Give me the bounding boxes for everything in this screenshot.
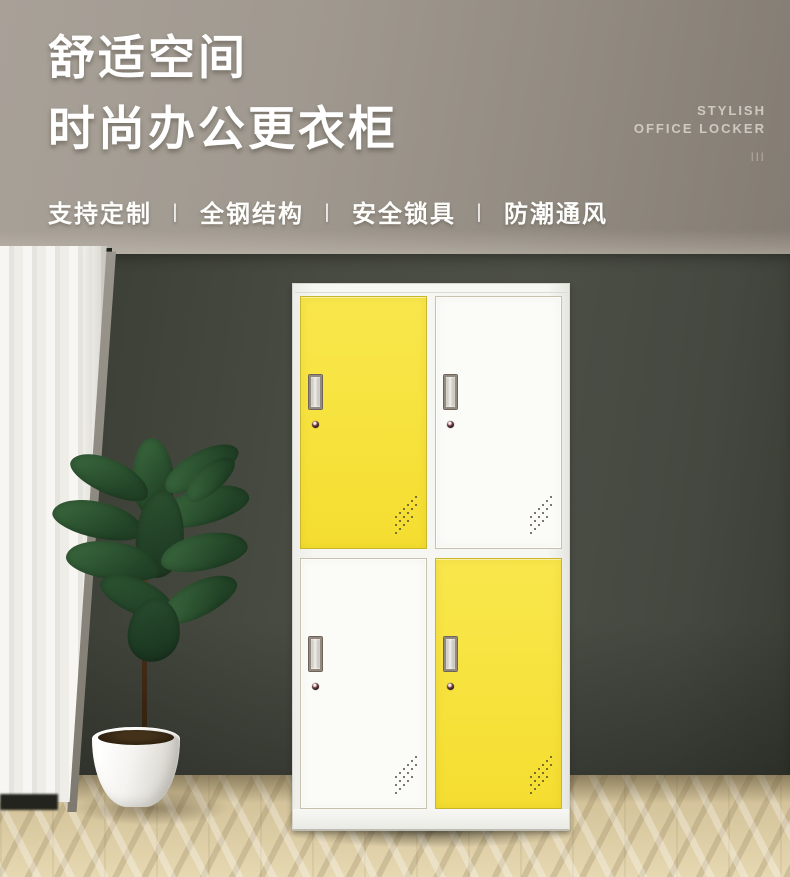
door-handle xyxy=(444,637,457,671)
door-handle xyxy=(444,375,457,409)
title-line-2: 时尚办公更衣柜 xyxy=(48,93,398,164)
feature-item: 安全锁具 xyxy=(352,201,456,228)
locker-door-top-left xyxy=(300,296,427,549)
title-line-1: 舒适空间 xyxy=(48,22,398,93)
english-tagline: STYLISH OFFICE LOCKER ||| xyxy=(634,102,766,165)
vent-holes xyxy=(395,494,419,535)
door-lock xyxy=(447,421,454,428)
door-lock xyxy=(312,683,319,690)
door-lock xyxy=(312,421,319,428)
main-title: 舒适空间 时尚办公更衣柜 xyxy=(48,22,398,164)
feature-list: 支持定制丨全钢结构丨安全锁具丨防潮通风 xyxy=(48,194,608,229)
promo-banner: 舒适空间 时尚办公更衣柜 支持定制丨全钢结构丨安全锁具丨防潮通风 STYLISH… xyxy=(0,0,790,877)
vent-holes xyxy=(530,494,554,535)
feature-item: 支持定制 xyxy=(48,201,152,228)
door-handle xyxy=(309,375,322,409)
feature-item: 防潮通风 xyxy=(504,201,608,228)
door-lock xyxy=(447,683,454,690)
feature-separator: 丨 xyxy=(469,203,491,225)
tagline-line-1: STYLISH xyxy=(634,102,766,120)
vent-holes xyxy=(395,754,419,795)
locker-base-plinth xyxy=(293,809,569,831)
locker-door-top-right xyxy=(435,296,562,549)
feature-item: 全钢结构 xyxy=(200,201,304,228)
potted-plant xyxy=(40,430,270,840)
feature-separator: 丨 xyxy=(165,203,187,225)
tagline-line-2: OFFICE LOCKER xyxy=(634,120,766,138)
feature-separator: 丨 xyxy=(317,203,339,225)
locker-door-bottom-left xyxy=(300,558,427,809)
office-locker-cabinet xyxy=(292,283,570,830)
door-handle xyxy=(309,637,322,671)
locker-door-bottom-right xyxy=(435,558,562,809)
vent-holes xyxy=(530,754,554,795)
tagline-marks: ||| xyxy=(634,147,766,165)
